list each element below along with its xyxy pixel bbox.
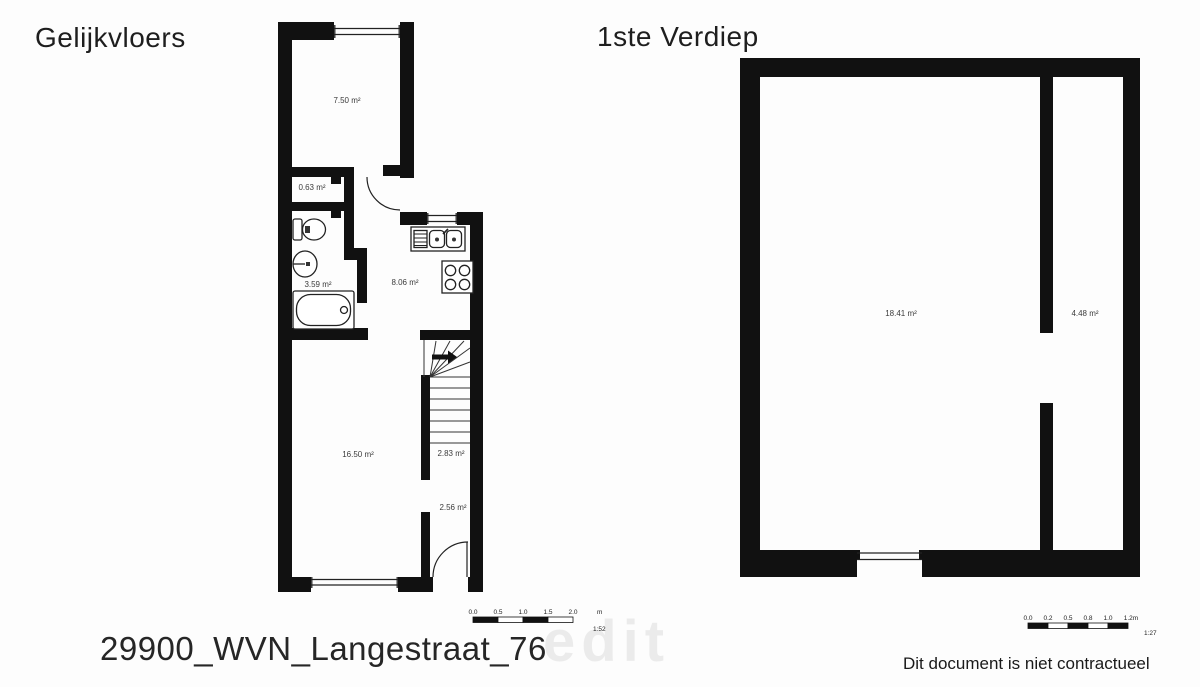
- scale-ratio: 1:52: [593, 626, 606, 633]
- stairs: [424, 340, 470, 443]
- scale-tick: 1.0: [1103, 615, 1112, 622]
- wall: [292, 167, 348, 177]
- kitchen-fixtures: [411, 227, 473, 293]
- wall: [278, 22, 334, 40]
- window-front: [334, 25, 400, 38]
- partition-wall: [1040, 403, 1053, 550]
- wall: [398, 577, 433, 592]
- wall: [400, 22, 414, 178]
- first-floor-plan: 18.41 m² 4.48 m² 0.0 0.2 0.5 0.8 1.0 1.2…: [740, 58, 1157, 637]
- wall: [383, 165, 401, 176]
- wall: [1123, 58, 1140, 577]
- wall: [740, 550, 857, 577]
- partition-wall: [1040, 77, 1053, 333]
- wall: [420, 330, 477, 340]
- first-floor-scale-bar: 0.0 0.2 0.5 0.8 1.0 1.2m 1:27: [1023, 615, 1157, 637]
- scale-ratio: 1:27: [1144, 630, 1157, 637]
- wall: [421, 512, 430, 580]
- scale-tick: 0.5: [493, 609, 502, 616]
- wall: [740, 58, 1140, 77]
- scale-tick: 1.2m: [1124, 615, 1138, 622]
- room-area-label: 4.48 m²: [1071, 309, 1098, 318]
- floorplan-canvas: 7.50 m² 0.63 m² 3.59 m² 8.06 m² 16.50 m²…: [0, 0, 1200, 687]
- wall: [344, 167, 354, 260]
- wall: [400, 212, 427, 225]
- room-area-label: 3.59 m²: [304, 280, 331, 289]
- window-kitchen: [427, 213, 457, 224]
- scale-tick: 0.0: [468, 609, 477, 616]
- cooktop-fixture: [442, 261, 473, 293]
- wall: [278, 328, 368, 340]
- wall: [421, 375, 430, 480]
- wall: [331, 177, 341, 184]
- window-living: [311, 577, 398, 588]
- scale-tick: 0.5: [1063, 615, 1072, 622]
- wall: [278, 577, 311, 592]
- scale-tick: 2.0: [568, 609, 577, 616]
- scale-segments: [1028, 623, 1128, 629]
- scale-tick-labels: 0.0 0.2 0.5 0.8 1.0 1.2m: [1023, 615, 1138, 622]
- door-arc-entrance: [433, 542, 468, 577]
- room-area-label: 7.50 m²: [333, 96, 360, 105]
- scale-tick: 0.0: [1023, 615, 1032, 622]
- window-jamb: [919, 550, 924, 559]
- room-area-label: 16.50 m²: [342, 450, 374, 459]
- room-area-label: 8.06 m²: [391, 278, 418, 287]
- scale-unit: m: [597, 609, 602, 616]
- scale-segments: [473, 617, 573, 623]
- scale-tick: 1.5: [543, 609, 552, 616]
- room-area-label: 2.56 m²: [439, 503, 466, 512]
- wall: [331, 211, 341, 218]
- washbasin-fixture: [293, 251, 317, 277]
- scale-tick: 1.0: [518, 609, 527, 616]
- ground-floor-plan: 7.50 m² 0.63 m² 3.59 m² 8.06 m² 16.50 m²…: [278, 22, 606, 633]
- toilet-fixture: [293, 219, 326, 240]
- window-first-floor: [857, 553, 922, 560]
- window-jamb: [855, 550, 860, 559]
- door-arc-front-room: [367, 177, 400, 210]
- room-area-label: 2.83 m²: [437, 449, 464, 458]
- scale-tick: 0.2: [1043, 615, 1052, 622]
- kitchen-sink-fixture: [411, 227, 465, 251]
- ground-floor-scale-bar: 0.0 0.5 1.0 1.5 2.0 m 1:52: [468, 609, 606, 633]
- bathtub-fixture: [293, 291, 354, 329]
- wall: [357, 248, 367, 303]
- wall: [278, 22, 292, 592]
- first-floor-room-labels: 18.41 m² 4.48 m²: [885, 309, 1099, 318]
- wall: [468, 577, 483, 592]
- scale-tick-labels: 0.0 0.5 1.0 1.5 2.0 m: [468, 609, 602, 616]
- scale-tick: 0.8: [1083, 615, 1092, 622]
- room-area-label: 0.63 m²: [298, 183, 325, 192]
- wall: [922, 550, 1140, 577]
- room-area-label: 18.41 m²: [885, 309, 917, 318]
- wall: [740, 58, 760, 577]
